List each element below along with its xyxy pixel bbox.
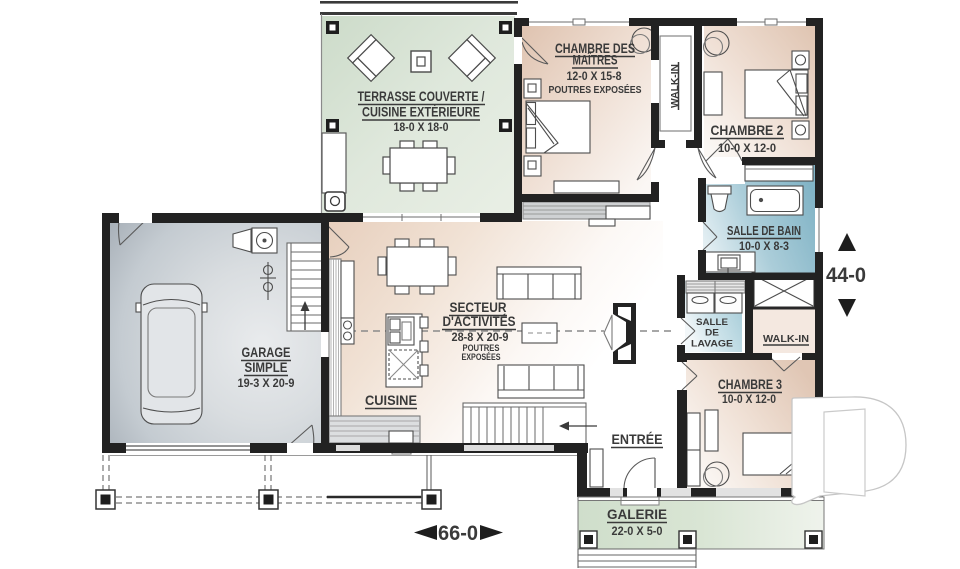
svg-text:CUISINE: CUISINE: [365, 393, 417, 408]
svg-text:WALK-IN: WALK-IN: [670, 64, 681, 108]
svg-text:MAÎTRES: MAÎTRES: [573, 53, 618, 68]
svg-text:CHAMBRE 2: CHAMBRE 2: [711, 123, 784, 138]
svg-text:19-3 X 20-9: 19-3 X 20-9: [238, 376, 295, 390]
svg-text:10-0 X 12-0: 10-0 X 12-0: [718, 141, 776, 155]
svg-text:10-0 X 12-0: 10-0 X 12-0: [722, 392, 776, 406]
svg-text:GARAGE: GARAGE: [242, 345, 291, 360]
svg-text:22-0 X 5-0: 22-0 X 5-0: [612, 524, 663, 538]
svg-text:LAVAGE: LAVAGE: [691, 339, 733, 349]
svg-text:28-8 X 20-9: 28-8 X 20-9: [452, 330, 509, 344]
svg-text:SECTEUR: SECTEUR: [450, 300, 507, 315]
svg-text:EXPOSÉES: EXPOSÉES: [462, 352, 501, 363]
svg-text:CHAMBRE 3: CHAMBRE 3: [718, 377, 782, 392]
svg-text:12-0 X 15-8: 12-0 X 15-8: [567, 69, 622, 83]
svg-text:10-0 X 8-3: 10-0 X 8-3: [739, 239, 789, 253]
svg-text:SIMPLE: SIMPLE: [245, 360, 288, 375]
svg-text:TERRASSE COUVERTE /: TERRASSE COUVERTE /: [358, 89, 485, 104]
svg-text:66-0: 66-0: [438, 522, 478, 545]
svg-text:POUTRES EXPOSÉES: POUTRES EXPOSÉES: [549, 83, 642, 96]
svg-text:SALLE: SALLE: [696, 317, 728, 327]
svg-text:GALERIE: GALERIE: [607, 507, 667, 522]
svg-text:44-0: 44-0: [826, 264, 866, 287]
svg-text:CUISINE EXTÉRIEURE: CUISINE EXTÉRIEURE: [362, 105, 480, 120]
svg-text:18-0 X 18-0: 18-0 X 18-0: [394, 120, 449, 134]
svg-text:SALLE DE BAIN: SALLE DE BAIN: [727, 224, 801, 238]
svg-text:DE: DE: [705, 328, 719, 338]
svg-text:WALK-IN: WALK-IN: [763, 333, 809, 345]
svg-text:ENTRÉE: ENTRÉE: [612, 432, 663, 447]
